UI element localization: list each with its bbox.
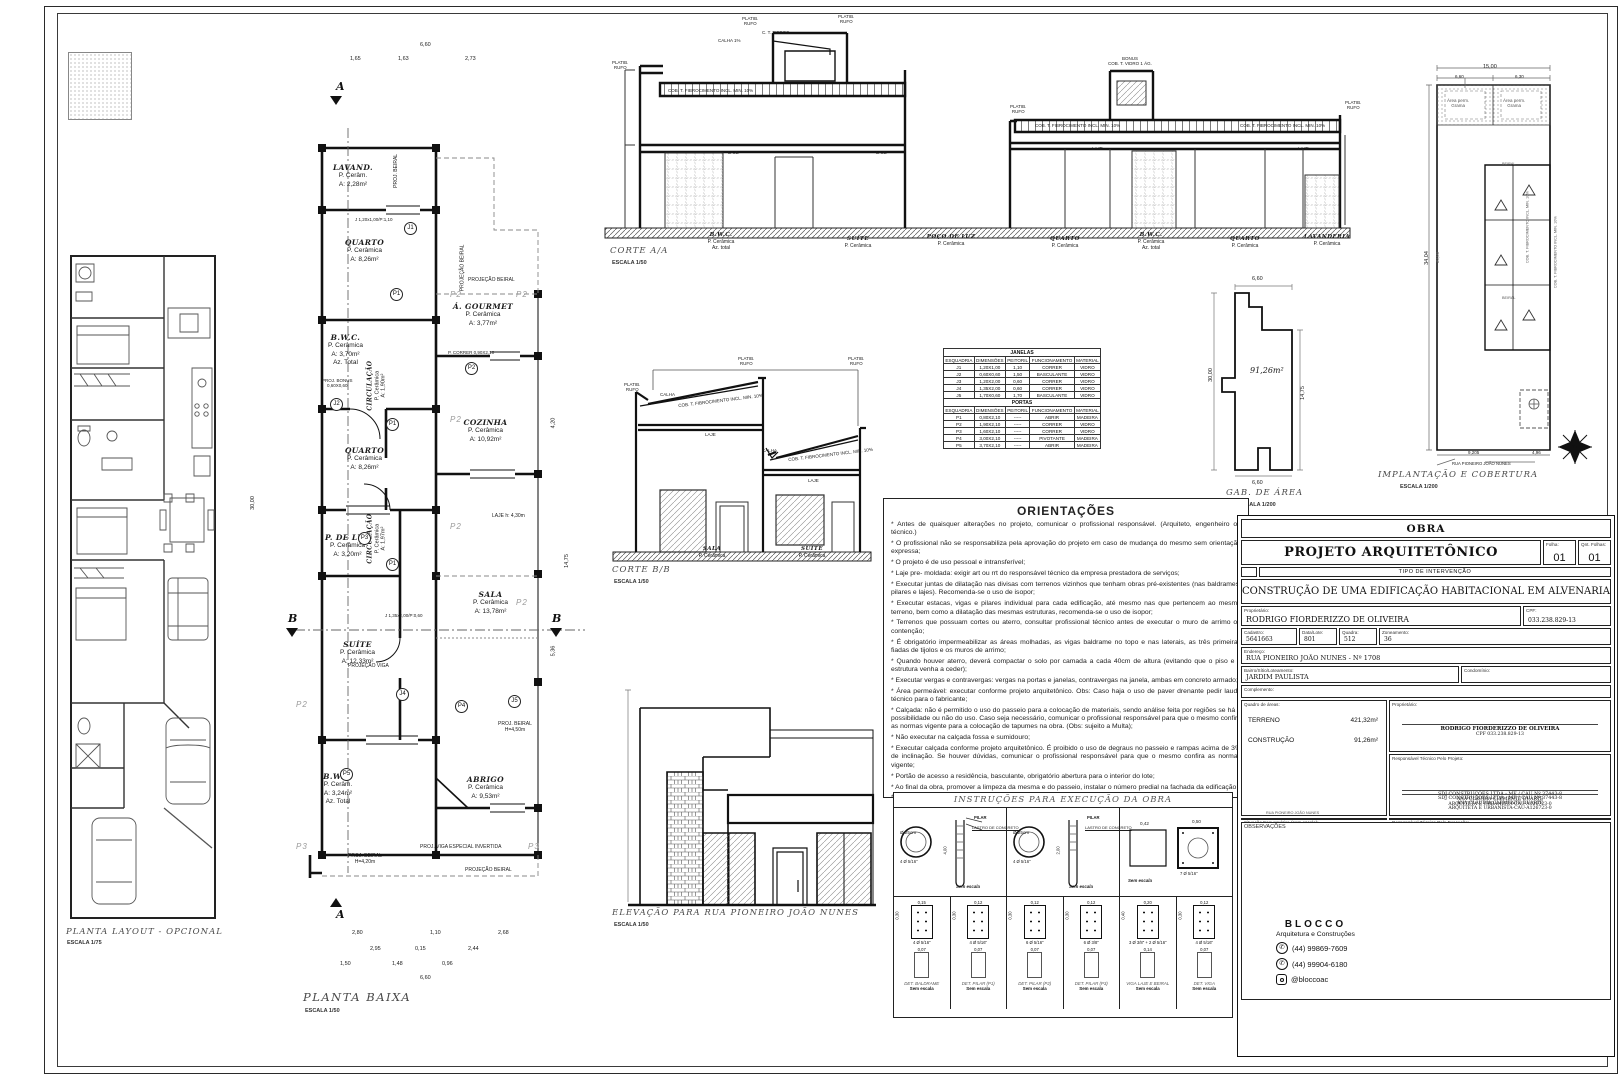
orientacoes-item: * Ao final da obra, promover a limpeza d…	[891, 784, 1241, 792]
tag-p5: P5	[340, 768, 353, 781]
impl-beiral-2: BEIRAL	[1502, 296, 1516, 300]
ann-proj-viga-especial: PROJ. VIGA ESPECIAL INVERTIDA	[420, 845, 501, 851]
orientacoes-item: * O projeto é de uso pessoal e intransfe…	[891, 559, 1241, 567]
ann-projecao-beiral-h: PROJEÇÃO BEIRAL	[468, 278, 515, 284]
room-gourmet: Á. GOURMETP. CerâmicaA: 3,77m²	[438, 302, 528, 328]
orientacoes-item: * Quando houver aterro, deverá compactar…	[891, 658, 1241, 675]
table-row: P21,90X2,10----- CORRERVIDRO	[944, 421, 1101, 428]
section-detail-cell: 0,12 0,30 4 Ø 5/16" 0,07 DET. PILAR (P1)…	[951, 897, 1008, 1009]
section-marker-a-bottom-arrow	[330, 898, 342, 907]
room-lavanderia: LAVAND.P. Cerâm.A: 2,28m²	[318, 163, 388, 189]
tag-p1-a: P1	[390, 288, 403, 301]
tb-cpf: 033.238.829-13	[1528, 617, 1576, 624]
tb-tel1: (44) 99869-7609	[1292, 944, 1347, 953]
corte-a-platib-5: PLATIB.RUFO	[1345, 100, 1361, 110]
room-quarto-2: QUARTOP. CerâmicaA: 8,26m²	[322, 446, 407, 472]
tag-j5: J5	[508, 695, 521, 708]
table-row: P10,80X2,10----- ABRIRMADEIRA	[944, 414, 1101, 421]
corte-b-room-suite: SUÍTEP. Cerâmica	[788, 546, 836, 559]
planta-baixa-scale: ESCALA 1/50	[305, 1008, 340, 1014]
estaca-detail-1: Ø 25cm 4 Ø 5/16" PILAR LASTRO DE CONCRET…	[894, 808, 1007, 896]
gab-dim-right: 14,75	[1300, 386, 1306, 400]
dim-pb-b2a: 2,95	[370, 946, 381, 952]
corte-b-platib-3: PLATIB.RUFO	[848, 356, 864, 366]
impl-street: RUA PIONEIRO JOÃO NUNES	[1452, 462, 1511, 467]
tb-instagram: @bloccoac	[1291, 975, 1328, 984]
ptag-6: P2	[296, 700, 308, 709]
dim-pb-r3: 5,36	[550, 646, 556, 657]
schedule-header-row: ESQUADRIADIMENSÕES PEITORILFUNCIONAMENTO…	[944, 357, 1101, 364]
corte-a-room-suite: SUÍTEP. Cerâmica	[833, 236, 883, 249]
section-marker-a-bottom: A	[336, 908, 345, 921]
impl-dim-left: 34,04	[1424, 251, 1430, 265]
orientacoes-item: * Portão de acesso a residência, bascula…	[891, 773, 1241, 781]
esquadrias-schedule-table: JANELAS ESQUADRIADIMENSÕES PEITORILFUNCI…	[943, 348, 1101, 449]
corte-a-platib-1: PLATIB.RUFO	[612, 60, 628, 70]
orientacoes-item: * Área permeável: executar conforme proj…	[891, 688, 1241, 705]
ptag-2: P2	[450, 415, 462, 424]
dim-pb-r1: 4,20	[550, 418, 556, 429]
permeable-area-legend	[68, 52, 132, 120]
orientacoes-item: * Executar estacas, vigas e pilares indi…	[891, 600, 1241, 617]
dim-pb-b3c: 0,96	[442, 961, 453, 967]
corte-a-room-quarto1: QUARTOP. Cerâmica	[1040, 236, 1090, 249]
corte-b-platib-1: PLATIB.RUFO	[624, 382, 640, 392]
elevacao-scale: ESCALA 1/50	[614, 922, 649, 928]
ptag-7: P3	[296, 842, 308, 851]
table-row: J20,60X0,601,50 BASCULANTEVIDRO	[944, 371, 1101, 378]
schedule-portas-title: PORTAS	[944, 399, 1101, 407]
impl-dim-left2: 30,00	[1435, 252, 1440, 263]
section-detail-cell: 0,12 0,30 6 Ø 5/16" 0,07 DET. PILAR (P2)…	[1007, 897, 1064, 1009]
impl-perm-2: Área perm.Grama	[1503, 98, 1525, 108]
table-row: P53,70X2,10----- ABRIRMADEIRA	[944, 442, 1101, 449]
section-marker-b-right-arrow	[550, 628, 562, 637]
section-detail-cell: 0,20 0,40 3 Ø 3/8" + 2 Ø 5/16" 0,14 VIGA…	[1120, 897, 1177, 1009]
table-row: J41,35X2,000,60 CORRERVIDRO	[944, 385, 1101, 392]
tb-tipo: TIPO DE INTERVENÇÃO	[1260, 568, 1610, 576]
tag-p2: P2	[465, 362, 478, 375]
ann-projecao-beiral-v: PROJEÇÃO BEIRAL	[460, 245, 466, 292]
orientacoes-item: * Calçada: não é permitido o uso do pass…	[891, 707, 1241, 732]
corte-aa-drawing	[605, 25, 1350, 240]
section-marker-b-right: B	[552, 612, 561, 625]
tb-cadastro: 5641663	[1246, 636, 1273, 643]
elevacao-title: ELEVAÇÃO PARA RUA PIONEIRO JOÃO NUNES	[612, 908, 859, 918]
impl-cob-2: COB. T. FIBROCIMENTO INCL. MIN. 10%	[1554, 216, 1558, 288]
room-abrigo: ABRIGOP. CerâmicaA: 9,53m²	[443, 775, 528, 801]
impl-dim-top: 15,00	[1483, 64, 1497, 70]
corte-a-calha: CALHA 1%	[718, 38, 741, 43]
bloco-detail: 0,42 0,50 7 Ø 5/16" Sem escala	[1120, 808, 1232, 896]
orientacoes-box: ORIENTAÇÕES * Antes de quaisquer alteraç…	[883, 498, 1249, 798]
orientacoes-title: ORIENTAÇÕES	[891, 504, 1241, 518]
corte-a-cob-2: COB. T. FIBROCIMENTO INCL. MIN. 10%	[1035, 123, 1120, 128]
implantacao-drawing	[1425, 60, 1610, 480]
section-marker-b-left: B	[288, 612, 297, 625]
instagram-icon	[1276, 974, 1287, 985]
schedule-header-row-2: ESQUADRIADIMENSÕES PEITORILFUNCIONAMENTO…	[944, 407, 1101, 414]
dim-pb-b4: 6,60	[420, 975, 431, 981]
corte-a-room-lavanderia: LAVANDERIAP. Cerâmica	[1298, 234, 1356, 247]
impl-perm-1: Área perm.Grama	[1447, 98, 1469, 108]
orientacoes-item: * O profissional não se responsabiliza p…	[891, 540, 1241, 557]
tb-proprietario: RODRIGO FIORDERIZZO DE OLIVEIRA	[1246, 615, 1409, 624]
planta-layout-drawing	[64, 248, 222, 924]
section-marker-a-top: A	[336, 80, 345, 93]
dim-pb-b1b: 1,10	[430, 930, 441, 936]
tag-p1-c: P1	[386, 558, 399, 571]
gab-area-value: 91,26m²	[1250, 366, 1284, 375]
dim-pb-b1a: 2,80	[352, 930, 363, 936]
corte-a-room-poco: POÇO DE LUZP. Cerâmica	[922, 234, 980, 247]
dim-pb-t3: 2,73	[465, 56, 476, 62]
section-marker-a-top-arrow	[330, 96, 342, 105]
ann-projecao-viga: PROJEÇÃO VIGA	[348, 664, 389, 670]
room-circulacao-1: CIRCULAÇÃOP. CerâmicaA: 1,90m²	[366, 354, 387, 418]
impl-title: IMPLANTAÇÃO E COBERTURA	[1378, 470, 1538, 480]
dim-pb-t2: 1,63	[398, 56, 409, 62]
title-block: OBRA PROJETO ARQUITETÔNICO Folha: 01 Qnt…	[1237, 515, 1615, 1057]
ann-beiral-450: PROJ. BEIRALH=4,50m	[498, 722, 532, 734]
tag-j4-c: J4	[396, 688, 409, 701]
section-detail-cells: 0,15 0,30 4 Ø 5/16" 0,07 DET. BALDRAME S…	[894, 897, 1232, 1009]
corte-b-room-sala: SALAP. Cerâmica	[688, 546, 736, 559]
tag-p3: P3	[358, 532, 371, 545]
architectural-sheet: PLANTA LAYOUT - OPCIONAL ESCALA 1/75	[0, 0, 1624, 1080]
table-row: J11,20X1,001,10 CORRERVIDRO	[944, 364, 1101, 371]
corte-a-platib-2: PLATIB.RUFO	[742, 16, 758, 26]
table-row: J31,20X2,000,60 CORRERVIDRO	[944, 378, 1101, 385]
whatsapp-icon: ✆	[1276, 942, 1288, 954]
corte-b-laje-2: LAJE	[808, 478, 819, 483]
tb-construcao: 91,26m²	[1354, 737, 1378, 744]
tb-bairro: JARDIM PAULISTA	[1246, 673, 1309, 681]
ann-laje: LAJE h: 4,30m	[492, 514, 525, 520]
orientacoes-item: * Laje pre- moldada: exigir art ou rrt d…	[891, 570, 1241, 578]
dim-pb-b2c: 2,44	[468, 946, 479, 952]
dim-pb-b3a: 1,50	[340, 961, 351, 967]
tb-quadra: 512	[1344, 636, 1355, 643]
orientacoes-item: * Terrenos que possuam cortes ou aterro,…	[891, 619, 1241, 636]
ann-porta-p2: P. CORRER 0,90X2,10	[448, 350, 494, 355]
table-row: P31,60X2,10----- CORRERVIDRO	[944, 428, 1101, 435]
tb-sig-cpf: CPF 033.238.829-13	[1390, 732, 1610, 737]
ann-proj-bonus: PROJ. BONUS0,60X0,60	[322, 378, 353, 388]
corte-a-caixa: C. T. FIBROC.	[762, 30, 791, 35]
corte-b-scale: ESCALA 1/50	[614, 579, 649, 585]
corte-a-platib-4: PLATIB.RUFO	[1010, 104, 1026, 114]
tb-lote: 801	[1304, 636, 1315, 643]
corte-a-laje-1: LAJE	[728, 150, 739, 155]
corte-a-room-bwc1: B.W.C.P. CerâmicaAz. total	[696, 232, 746, 251]
tb-obs-label: OBSERVAÇÕES	[1244, 824, 1286, 830]
situacao-street-label: RUA PIONEIRO JOÃO NUNES	[1266, 811, 1319, 815]
corte-a-platib-3: PLATIB.RUFO	[838, 14, 854, 24]
orientacoes-item: * É obrigatório impermeabilizar as áreas…	[891, 639, 1241, 656]
dim-pb-t1: 1,65	[350, 56, 361, 62]
ptag-3: P2	[516, 290, 528, 299]
room-bwc-2: B.W.C.P. Cerâm.A: 3,24m²Az. Total	[303, 772, 373, 806]
tb-folha-label: Folha:	[1546, 542, 1559, 547]
orientacoes-item: * Executar calçada conforme projeto arqu…	[891, 745, 1241, 770]
tb-terreno-label: TERRENO	[1248, 717, 1280, 724]
corte-b-calha-1: CALHA	[660, 392, 675, 397]
ptag-5: P2	[516, 598, 528, 607]
tb-qnt-label: Qnt. Folhas:	[1581, 542, 1606, 547]
logo-blocco: BLOCCO	[1276, 919, 1355, 930]
whatsapp-icon: ✆	[1276, 958, 1288, 970]
tag-p1-b: P1	[386, 418, 399, 431]
table-row: P43,00X2,10----- PIVOTANTEMADEIRA	[944, 435, 1101, 442]
tb-descricao: CONSTRUÇÃO DE UMA EDIFICAÇÃO HABITACIONA…	[1242, 580, 1610, 603]
table-row: J51,70X0,601,70 BASCULANTEVIDRO	[944, 392, 1101, 399]
schedule-portas-rows: P10,80X2,10----- ABRIRMADEIRA P21,90X2,1…	[944, 414, 1101, 449]
impl-dim-t2: 6,30	[1515, 74, 1524, 79]
corte-a-scale: ESCALA 1/50	[612, 260, 647, 266]
ptag-8: P3	[528, 842, 540, 851]
tb-tel2: (44) 99904-6180	[1292, 960, 1347, 969]
section-detail-cell: 0,15 0,30 4 Ø 5/16" 0,07 DET. BALDRAME S…	[894, 897, 951, 1009]
dim-pb-b2b: 0,15	[415, 946, 426, 952]
impl-cob-1: COB. T. FIBROCIMENTO INCL. MIN. 10%	[1526, 191, 1530, 263]
impl-dim-t1: 6,60	[1455, 74, 1464, 79]
corte-a-cob-3: COB. T. FIBROCIMENTO INCL. MIN. 10%	[1240, 123, 1325, 128]
gab-dim-top: 6,60	[1252, 276, 1263, 282]
gab-dim-bottom: 6,60	[1252, 480, 1263, 486]
estaca-detail-2: Ø 25cm 4 Ø 5/16" PILAR LASTRO DE CONCRET…	[1007, 808, 1120, 896]
dim-pb-b1c: 2,68	[498, 930, 509, 936]
logo-blocco-sub: Arquitetura e Construções	[1276, 931, 1355, 938]
orientacoes-item: * Antes de quaisquer alterações no proje…	[891, 521, 1241, 538]
instrucoes-box: INSTRUÇÕES PARA EXECUÇÃO DA OBRA Ø 25cm …	[893, 792, 1233, 1018]
instrucoes-title: INSTRUÇÕES PARA EXECUÇÃO DA OBRA	[894, 793, 1232, 808]
tb-terreno: 421,32m²	[1351, 717, 1378, 724]
gab-title: GAB. DE ÁREA	[1226, 488, 1303, 498]
orientacoes-item: * Executar vergas e contravergas: vergas…	[891, 677, 1241, 685]
ptag-4: P2	[450, 522, 462, 531]
impl-dim-b1: 9,205	[1468, 450, 1479, 455]
corte-a-laje-3: LAJE	[1092, 146, 1103, 151]
room-quarto-1: QUARTOP. CerâmicaA: 8,26m²	[322, 238, 407, 264]
corte-b-laje-1: LAJE	[705, 432, 716, 437]
corte-a-room-quarto2: QUARTOP. Cerâmica	[1220, 236, 1270, 249]
dim-pb-left: 30,00	[250, 496, 256, 510]
tb-obra: OBRA	[1242, 520, 1610, 537]
dim-pb-b3b: 1,48	[392, 961, 403, 967]
gab-dim-left: 30,00	[1208, 368, 1214, 382]
ann-projecao-beiral-b: PROJEÇÃO BEIRAL	[465, 868, 512, 874]
tb-zoneamento: 36	[1384, 636, 1392, 643]
orientacoes-item: * Não executar na calçada fossa e sumido…	[891, 734, 1241, 742]
section-marker-b-left-arrow	[286, 628, 298, 637]
impl-scale: ESCALA 1/200	[1400, 484, 1438, 490]
ptag-1: P2	[450, 290, 462, 299]
tb-projeto: PROJETO ARQUITETÔNICO	[1242, 541, 1540, 564]
north-arrow-icon	[1558, 430, 1592, 464]
corte-b-calha-2: CALHA	[762, 448, 777, 453]
planta-layout-scale: ESCALA 1/75	[67, 940, 102, 946]
planta-layout-title: PLANTA LAYOUT - OPCIONAL	[66, 927, 223, 937]
tag-p4: P4	[455, 700, 468, 713]
corte-a-room-bwc2: B.W.C.P. CerâmicaAz. total	[1126, 232, 1176, 251]
tag-j2: J2	[330, 398, 343, 411]
corte-a-cob-1: COB. T. FIBROCIMENTO INCL. MIN. 10%	[668, 88, 753, 93]
impl-beiral-1: BEIRAL	[1502, 162, 1516, 166]
ann-proj-beiral-1: PROJ. BEIRAL	[394, 154, 400, 188]
corte-b-platib-2: PLATIB.RUFO	[738, 356, 754, 366]
ann-janela-j1: J 1,20x1,00/P:1,10	[355, 217, 393, 222]
planta-baixa-drawing	[290, 118, 590, 880]
section-detail-cell: 0,12 0,30 4 Ø 5/16" 0,07 DET. VIGA Sem e…	[1177, 897, 1233, 1009]
corte-b-title: CORTE B/B	[612, 565, 671, 575]
corte-a-laje-2: LAJE	[876, 150, 887, 155]
schedule-janelas-title: JANELAS	[944, 349, 1101, 357]
impl-dim-b2: 4,96	[1532, 450, 1541, 455]
corte-a-title: CORTE A/A	[610, 246, 668, 256]
ann-beiral-420: PROJ. BEIRALH=4,20m	[348, 854, 382, 866]
orientacoes-list: * Antes de quaisquer alterações no proje…	[891, 521, 1241, 803]
dim-pb-r2: 14,75	[564, 554, 570, 568]
room-suite: SUÍTEP. CerâmicaA: 12,33m²	[315, 640, 400, 666]
dim-pb-top: 6,60	[420, 42, 431, 48]
corte-a-laje-4: LAJE	[1298, 146, 1309, 151]
schedule-janelas-rows: J11,20X1,001,10 CORRERVIDRO J20,60X0,601…	[944, 364, 1101, 399]
planta-baixa-title: PLANTA BAIXA	[303, 990, 411, 1004]
tb-construcao-label: CONSTRUÇÃO	[1248, 737, 1294, 744]
tb-endereco: RUA PIONEIRO JOÃO NUNES - Nº 1708	[1246, 654, 1380, 662]
ann-janela-j4: J 1,35x2,00/P:0,60	[385, 613, 423, 618]
tag-j1: J1	[404, 222, 417, 235]
section-detail-cell: 0,12 0,30 6 Ø 3/8" 0,07 DET. PILAR (P3) …	[1064, 897, 1121, 1009]
corte-a-bonus: BONUSCOB. T. VIDRO 1 ÁG.	[1108, 56, 1152, 66]
elevacao-drawing	[608, 680, 878, 910]
orientacoes-item: * Executar juntas de dilatação nas divis…	[891, 581, 1241, 598]
